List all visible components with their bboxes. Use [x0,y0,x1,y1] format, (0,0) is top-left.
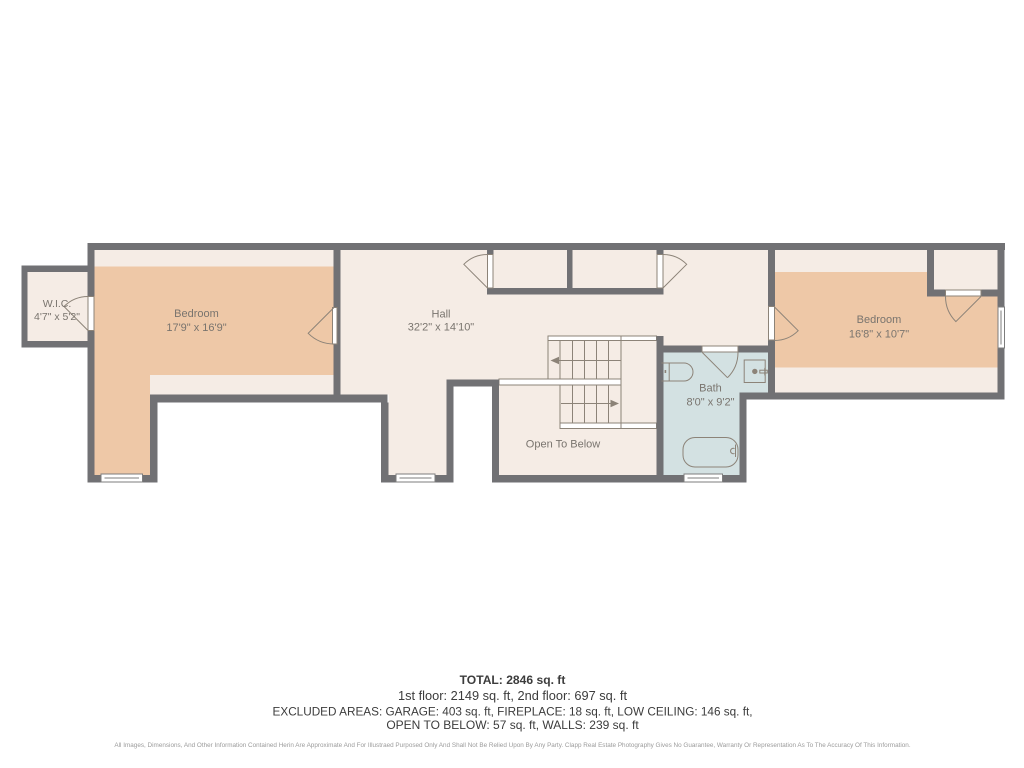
svg-text:17'9" x 16'9": 17'9" x 16'9" [166,322,226,334]
svg-text:Bedroom: Bedroom [174,308,219,320]
svg-text:OPEN TO BELOW: 57 sq. ft, WALL: OPEN TO BELOW: 57 sq. ft, WALLS: 239 sq.… [386,718,639,732]
svg-text:32'2" x 14'10": 32'2" x 14'10" [408,322,475,334]
svg-text:W.I.C.: W.I.C. [43,298,72,310]
svg-text:4'7" x 5'2": 4'7" x 5'2" [34,311,80,323]
svg-text:16'8" x 10'7": 16'8" x 10'7" [849,329,909,341]
svg-text:All Images, Dimensions, And Ot: All Images, Dimensions, And Other Inform… [114,742,910,749]
svg-text:8'0" x 9'2": 8'0" x 9'2" [686,397,734,409]
svg-text:Bedroom: Bedroom [857,314,902,326]
svg-text:TOTAL: 2846 sq. ft: TOTAL: 2846 sq. ft [460,673,566,687]
svg-text:EXCLUDED AREAS: GARAGE: 403 sq: EXCLUDED AREAS: GARAGE: 403 sq. ft, FIRE… [273,706,753,719]
svg-text:Hall: Hall [432,309,451,321]
svg-text:Bath: Bath [699,383,722,395]
svg-text:Open To Below: Open To Below [526,439,600,451]
svg-text:1st floor: 2149 sq. ft, 2nd fl: 1st floor: 2149 sq. ft, 2nd floor: 697 s… [398,688,628,703]
